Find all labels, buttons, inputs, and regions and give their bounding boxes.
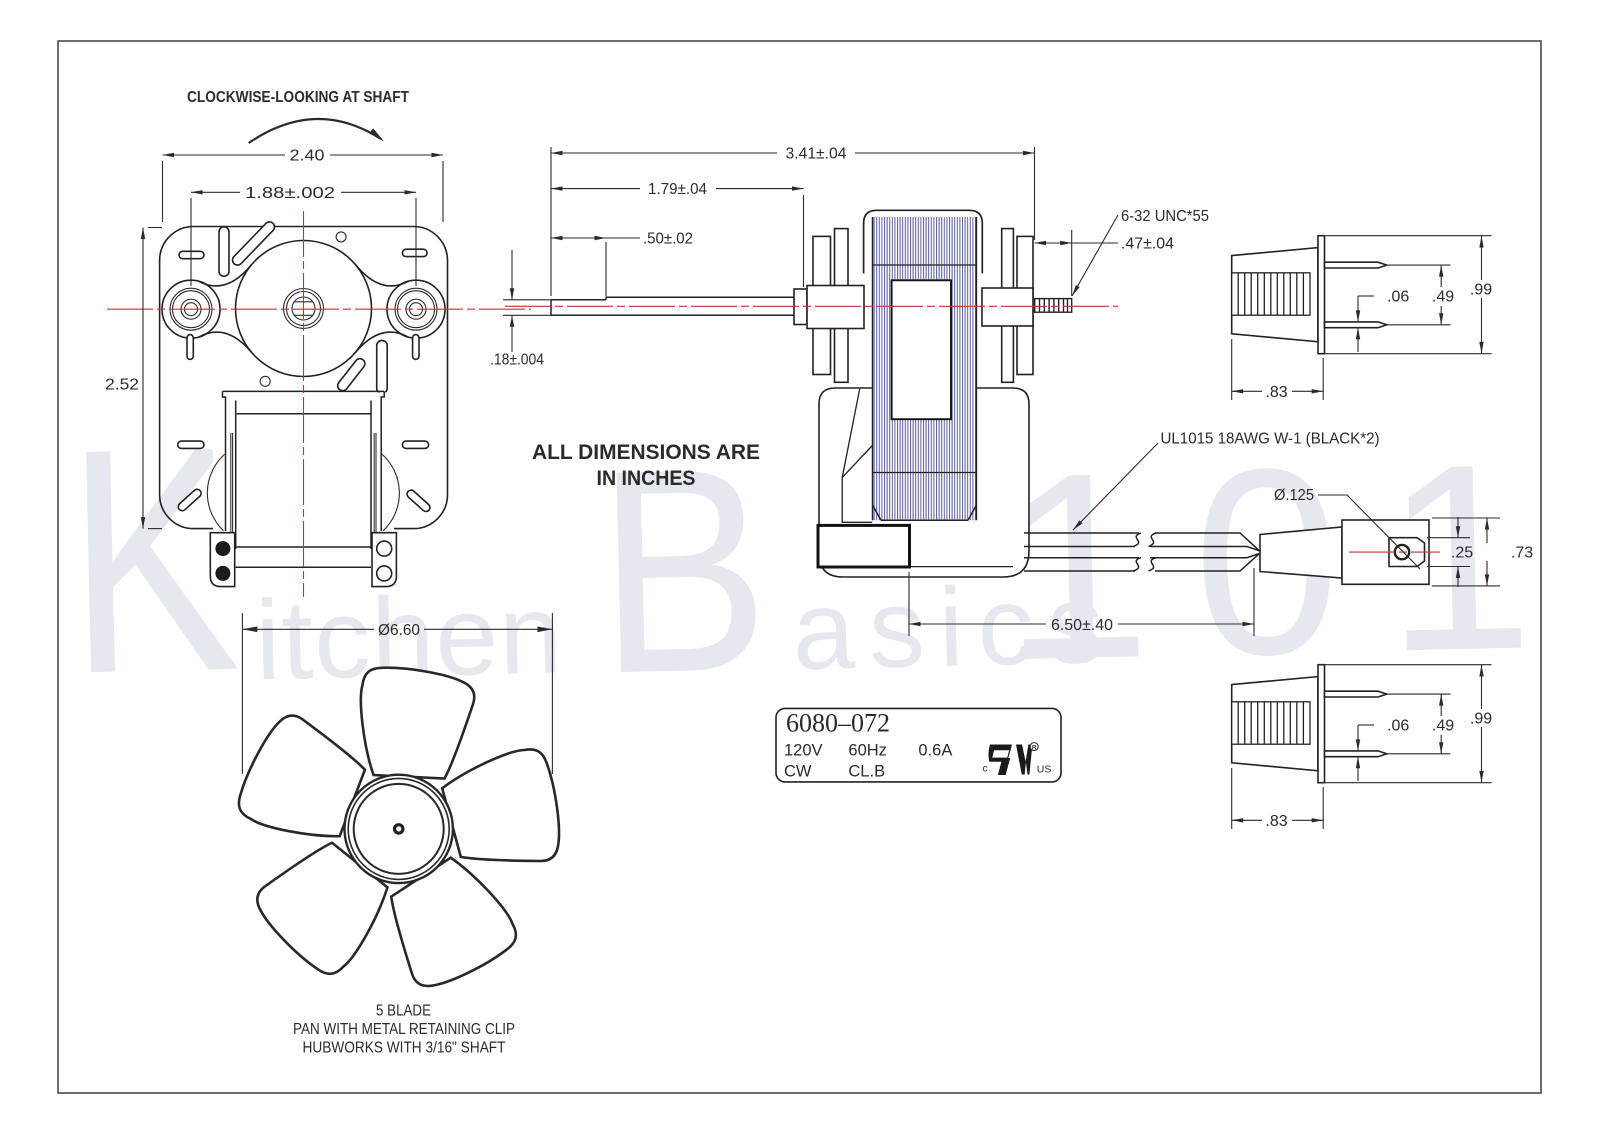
svg-text:120V: 120V (784, 742, 823, 760)
svg-text:6080–072: 6080–072 (786, 709, 890, 738)
svg-text:6.50±.40: 6.50±.40 (1051, 617, 1113, 634)
svg-text:5 BLADE: 5 BLADE (376, 1003, 431, 1020)
svg-text:6-32 UNC*55: 6-32 UNC*55 (1121, 208, 1209, 225)
svg-text:.25: .25 (1451, 545, 1473, 562)
svg-text:0.6A: 0.6A (918, 742, 952, 760)
svg-text:Ø6.60: Ø6.60 (378, 622, 420, 639)
svg-text:UL1015 18AWG W-1 (BLACK*2): UL1015 18AWG W-1 (BLACK*2) (1161, 431, 1380, 448)
svg-text:ALL DIMENSIONS ARE: ALL DIMENSIONS ARE (532, 440, 760, 464)
svg-text:PAN WITH METAL RETAINING CLIP: PAN WITH METAL RETAINING CLIP (293, 1021, 515, 1038)
svg-text:2.52: 2.52 (105, 377, 139, 394)
svg-text:.47±.04: .47±.04 (1121, 236, 1174, 253)
svg-text:CW: CW (784, 762, 812, 780)
svg-text:.06: .06 (1387, 289, 1409, 306)
svg-text:c: c (983, 763, 988, 775)
svg-text:.99: .99 (1470, 282, 1492, 299)
svg-text:US: US (1037, 764, 1052, 776)
svg-text:CL.B: CL.B (848, 762, 885, 780)
svg-text:3.41±.04: 3.41±.04 (786, 146, 847, 163)
svg-text:Ø.125: Ø.125 (1274, 487, 1314, 504)
svg-text:60Hz: 60Hz (848, 742, 887, 760)
svg-text:CLOCKWISE-LOOKING AT SHAFT: CLOCKWISE-LOOKING AT SHAFT (187, 89, 409, 106)
svg-text:.49: .49 (1432, 289, 1454, 306)
svg-text:HUBWORKS WITH 3/16" SHAFT: HUBWORKS WITH 3/16" SHAFT (303, 1040, 506, 1057)
svg-text:IN INCHES: IN INCHES (597, 466, 696, 490)
svg-text:R: R (1032, 745, 1037, 752)
svg-text:.50±.02: .50±.02 (643, 231, 693, 248)
svg-text:.73: .73 (1511, 545, 1533, 562)
svg-text:.83: .83 (1265, 384, 1287, 401)
svg-text:1.88±.002: 1.88±.002 (245, 185, 335, 202)
svg-text:2.40: 2.40 (290, 148, 325, 165)
svg-text:1.79±.04: 1.79±.04 (648, 181, 707, 198)
svg-text:.18±.004: .18±.004 (490, 352, 544, 369)
